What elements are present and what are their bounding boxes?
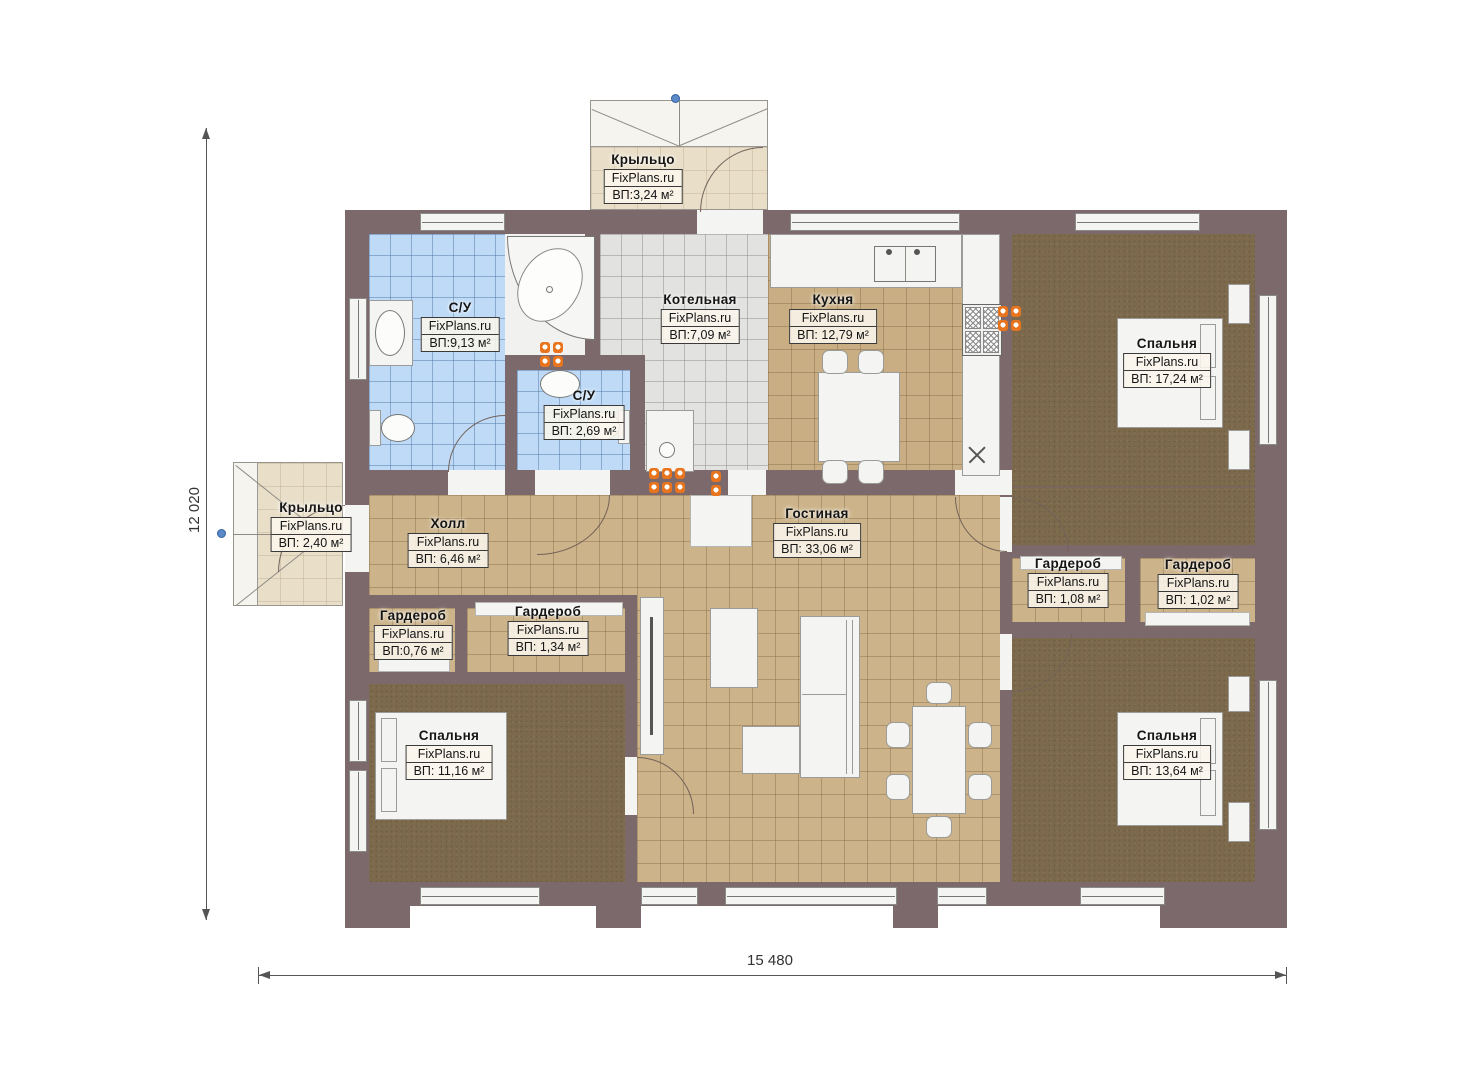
dimension-line-horizontal — [258, 975, 1287, 976]
sink-x-symbol — [966, 443, 988, 465]
room-area: ВП: 6,46 м² — [409, 551, 488, 567]
room-label-wardrobe-2: Гардероб FixPlans.ruВП: 1,02 м² — [1158, 557, 1239, 609]
window — [420, 213, 505, 231]
kitchen-faucet — [914, 249, 920, 255]
watermark: FixPlans.ru — [422, 318, 499, 335]
nightstand — [1228, 430, 1250, 470]
wall-bedroombl-right — [625, 595, 637, 882]
wall-wardrobe-right-mid — [1125, 558, 1140, 625]
room-name: Спальня — [1137, 336, 1197, 351]
toilet-tank — [369, 410, 381, 446]
dimension-arrow-right — [1275, 971, 1286, 979]
room-label-bedroom-bottom-right: Спальня FixPlans.ruВП: 13,64 м² — [1123, 728, 1211, 780]
radiator — [998, 306, 1021, 331]
room-name: Гостиная — [785, 506, 848, 521]
wall-pier — [893, 906, 938, 928]
pillow — [381, 718, 397, 762]
watermark: FixPlans.ru — [790, 310, 876, 327]
door-opening-bathroom-main — [448, 470, 505, 495]
boiler-dial — [659, 442, 675, 458]
door-opening-bedroom-bottom-left — [625, 757, 637, 815]
room-area: ВП: 2,69 м² — [545, 423, 624, 439]
watermark: FixPlans.ru — [509, 622, 588, 639]
room-label-bedroom-top-right: Спальня FixPlans.ruВП: 17,24 м² — [1123, 336, 1211, 388]
chair — [968, 722, 992, 748]
room-name: Крыльцо — [279, 500, 343, 515]
room-label-hall: Холл FixPlans.ruВП: 6,46 м² — [408, 516, 489, 568]
chair — [822, 350, 848, 374]
window — [725, 887, 897, 905]
chair — [886, 722, 910, 748]
wall-wardrobe-left-mid — [455, 608, 467, 672]
window — [1075, 213, 1200, 231]
sofa-seam — [846, 620, 847, 774]
room-label-bedroom-bottom-left: Спальня FixPlans.ruВП: 11,16 м² — [406, 728, 493, 780]
room-label-living: Гостиная FixPlans.ruВП: 33,06 м² — [773, 506, 861, 558]
watermark: FixPlans.ru — [409, 534, 488, 551]
boiler — [646, 410, 694, 472]
room-area: ВП: 1,08 м² — [1029, 591, 1108, 607]
room-label-wardrobe-3: Гардероб FixPlans.ruВП:0,76 м² — [374, 608, 453, 660]
sofa-chaise — [742, 726, 800, 774]
room-name: С/У — [573, 388, 596, 403]
room-name: Гардероб — [1165, 557, 1231, 572]
window — [1259, 680, 1277, 830]
floor-plan: С/У FixPlans.ruВП:9,13 м² С/У FixPlans.r… — [0, 0, 1474, 1080]
door-leaf-boiler — [690, 495, 752, 547]
sofa-seam — [802, 694, 846, 695]
wall-pier — [1160, 906, 1287, 928]
chair — [822, 460, 848, 484]
nightstand — [1228, 284, 1250, 324]
room-label-wardrobe-1: Гардероб FixPlans.ruВП: 1,08 м² — [1028, 556, 1109, 608]
watermark: FixPlans.ru — [662, 310, 739, 327]
toilet-bowl — [381, 414, 415, 442]
room-area: ВП: 1,02 м² — [1159, 592, 1238, 608]
room-name: Холл — [430, 516, 465, 531]
room-name: Гардероб — [1035, 556, 1101, 571]
chair — [926, 682, 952, 704]
window — [349, 700, 367, 762]
watermark: FixPlans.ru — [1124, 746, 1210, 763]
watermark: FixPlans.ru — [407, 746, 492, 763]
chair — [886, 774, 910, 800]
porch-top-marker — [671, 94, 680, 103]
room-name: Гардероб — [380, 608, 446, 623]
dimension-arrow-down — [202, 909, 210, 920]
kitchen-table — [818, 372, 900, 462]
room-area: ВП: 11,16 м² — [407, 763, 492, 779]
room-name: Спальня — [1137, 728, 1197, 743]
watermark: FixPlans.ru — [1029, 574, 1108, 591]
wardrobe-door — [1145, 612, 1250, 626]
door-opening-hall — [535, 470, 610, 495]
room-area: ВП:0,76 м² — [375, 643, 452, 659]
wall-pier — [345, 906, 410, 928]
kitchen-faucet — [886, 249, 892, 255]
room-label-porch-left: Крыльцо FixPlans.ruВП: 2,40 м² — [271, 500, 352, 552]
room-area: ВП: 12,79 м² — [790, 327, 876, 343]
chair — [926, 816, 952, 838]
room-area: ВП: 13,64 м² — [1124, 763, 1210, 779]
chair — [858, 350, 884, 374]
wardrobe-door — [378, 658, 450, 672]
window — [349, 770, 367, 852]
dimension-arrow-up — [202, 128, 210, 139]
watermark: FixPlans.ru — [774, 524, 860, 541]
porch-top-ridge — [679, 100, 680, 147]
room-name: Котельная — [663, 292, 736, 307]
room-label-bathroom-main: С/У FixPlans.ruВП:9,13 м² — [421, 300, 500, 352]
dimension-line-vertical — [206, 128, 207, 920]
wall-bath-small-top — [505, 355, 645, 370]
nightstand — [1228, 802, 1250, 842]
watermark: FixPlans.ru — [375, 626, 452, 643]
window — [1259, 295, 1277, 445]
window — [1080, 887, 1165, 905]
nightstand — [1228, 676, 1250, 712]
window — [420, 887, 540, 905]
radiator — [540, 342, 563, 367]
window — [349, 298, 367, 380]
dimension-width-label: 15 480 — [690, 952, 850, 972]
wall-bath-small-left — [505, 355, 517, 481]
room-area: ВП: 1,34 м² — [509, 639, 588, 655]
window — [937, 887, 987, 905]
coffee-table — [710, 608, 758, 688]
window — [641, 887, 698, 905]
watermark: FixPlans.ru — [1124, 354, 1210, 371]
bathtub-drain — [546, 286, 553, 293]
room-label-wardrobe-4: Гардероб FixPlans.ruВП: 1,34 м² — [508, 604, 589, 656]
chair — [968, 774, 992, 800]
window — [790, 213, 960, 231]
dimension-tick — [1286, 967, 1287, 984]
room-label-kitchen: Кухня FixPlans.ruВП: 12,79 м² — [789, 292, 877, 344]
room-label-bathroom-small: С/У FixPlans.ruВП: 2,69 м² — [544, 388, 625, 440]
watermark: FixPlans.ru — [272, 518, 351, 535]
room-label-boiler: Котельная FixPlans.ruВП:7,09 м² — [661, 292, 740, 344]
section-line — [1012, 486, 1255, 488]
wall-bedroombl-top — [369, 672, 625, 684]
radiator — [711, 471, 721, 496]
room-name: Гардероб — [515, 604, 581, 619]
room-name: Кухня — [813, 292, 854, 307]
door-opening-bedroom-bottom-right — [1000, 634, 1012, 690]
tv — [650, 617, 653, 735]
pillow — [381, 768, 397, 812]
chair — [858, 460, 884, 484]
wall-pier — [596, 906, 641, 928]
sink-basin — [375, 310, 405, 356]
room-area: ВП: 2,40 м² — [272, 535, 351, 551]
room-area: ВП:7,09 м² — [662, 327, 739, 343]
sofa — [800, 616, 860, 778]
room-name: Спальня — [419, 728, 479, 743]
room-name: С/У — [449, 300, 472, 315]
room-area: ВП:3,24 м² — [605, 187, 682, 203]
watermark: FixPlans.ru — [545, 406, 624, 423]
room-label-porch-top: Крыльцо FixPlans.ruВП:3,24 м² — [604, 152, 683, 204]
wall-bath-small-right — [630, 355, 645, 481]
room-name: Крыльцо — [611, 152, 675, 167]
door-opening-entrance — [697, 210, 763, 234]
porch-left-marker — [217, 529, 226, 538]
dimension-arrow-left — [259, 971, 270, 979]
watermark: FixPlans.ru — [1159, 575, 1238, 592]
room-area: ВП:9,13 м² — [422, 335, 499, 351]
sofa-seam — [852, 620, 853, 774]
door-opening-boiler — [728, 470, 766, 495]
room-area: ВП: 33,06 м² — [774, 541, 860, 557]
dining-table — [912, 706, 966, 814]
watermark: FixPlans.ru — [605, 170, 682, 187]
room-area: ВП: 17,24 м² — [1124, 371, 1210, 387]
dimension-height-label: 12 020 — [186, 465, 206, 555]
kitchen-sink-divider — [905, 247, 906, 281]
radiator — [649, 468, 685, 493]
stove — [962, 304, 1002, 356]
